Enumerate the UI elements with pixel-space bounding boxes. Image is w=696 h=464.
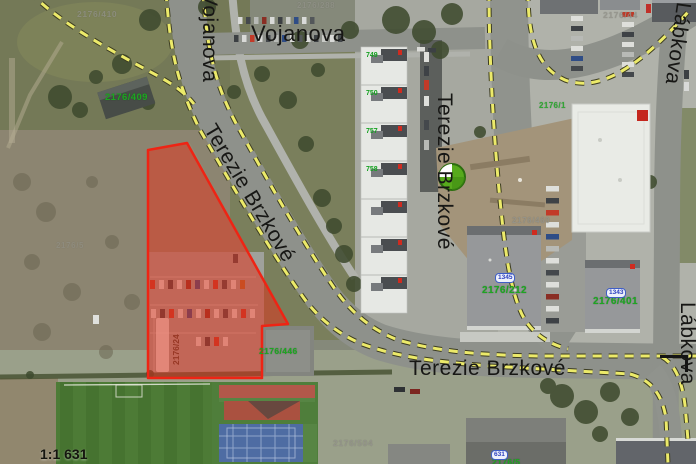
red-house-number-mark [398, 278, 402, 283]
poi-marker-icon[interactable] [439, 164, 465, 190]
red-house-number-mark [398, 50, 402, 55]
red-house-number-mark [398, 126, 402, 131]
house-number-blue: 631 [491, 450, 508, 460]
red-house-number-mark [398, 164, 402, 169]
map-canvas [0, 0, 696, 464]
red-house-number-mark [398, 240, 402, 245]
satellite-map-view[interactable]: Vojanova Vojanova Terezie Brzkové Terezi… [0, 0, 696, 464]
store-building [572, 104, 650, 232]
store-logo [637, 110, 648, 121]
red-house-number-mark [398, 202, 402, 207]
house-number-blue: 1345 [495, 273, 515, 283]
red-house-number-mark [630, 264, 635, 269]
apartment-block [361, 47, 407, 313]
notch-building [262, 326, 314, 376]
red-house-number-mark [532, 230, 537, 235]
house-number-blue: 1343 [606, 288, 626, 298]
red-house-number-mark [398, 88, 402, 93]
